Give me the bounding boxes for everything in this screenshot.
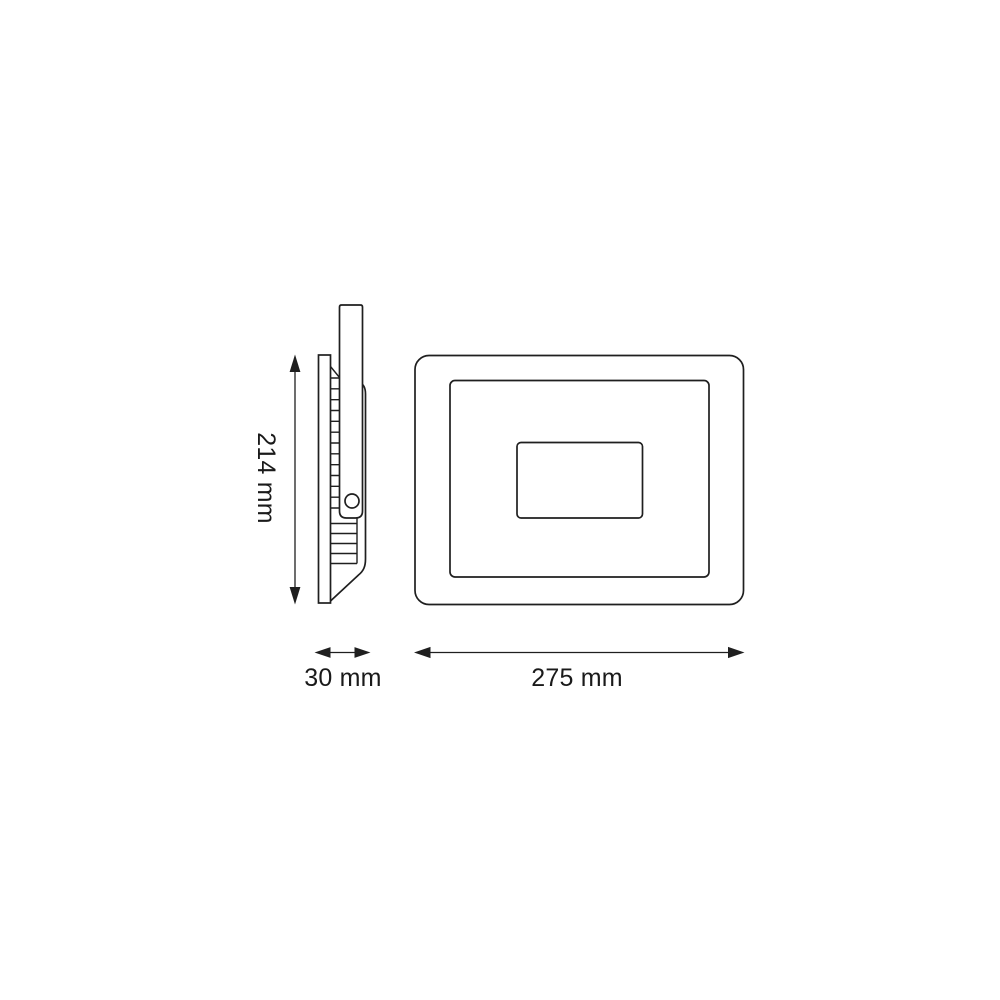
height-dimension-label: 214 mm: [252, 432, 280, 524]
width-dimension: 275 mm: [414, 647, 745, 692]
height-dimension: 214 mm: [252, 355, 300, 605]
depth-dimension-label: 30 mm: [304, 664, 381, 692]
depth-dimension: 30 mm: [304, 647, 381, 692]
height-dimension-arrowhead-top: [290, 355, 301, 373]
side-view-upper-fins: [331, 378, 340, 508]
depth-dimension-arrowhead-right: [355, 647, 371, 658]
height-dimension-arrowhead-bottom: [290, 587, 301, 605]
front-view: [415, 356, 744, 605]
width-dimension-label: 275 mm: [531, 664, 623, 692]
width-dimension-arrowhead-left: [414, 647, 431, 658]
side-view-lower-fins: [331, 518, 358, 564]
side-view: [319, 305, 366, 603]
dimension-drawing-canvas: 214 mm 30 mm 275 mm: [0, 0, 1000, 1000]
width-dimension-arrowhead-right: [728, 647, 745, 658]
side-view-mounting-bracket: [340, 305, 363, 518]
side-view-fin-chamfer: [331, 367, 340, 378]
depth-dimension-arrowhead-left: [315, 647, 331, 658]
side-view-pivot-hole: [345, 494, 359, 508]
front-view-driver-box: [517, 443, 643, 519]
floodlight-dimension-diagram: 214 mm 30 mm 275 mm: [0, 0, 1000, 1000]
side-view-front-plate: [319, 355, 331, 603]
